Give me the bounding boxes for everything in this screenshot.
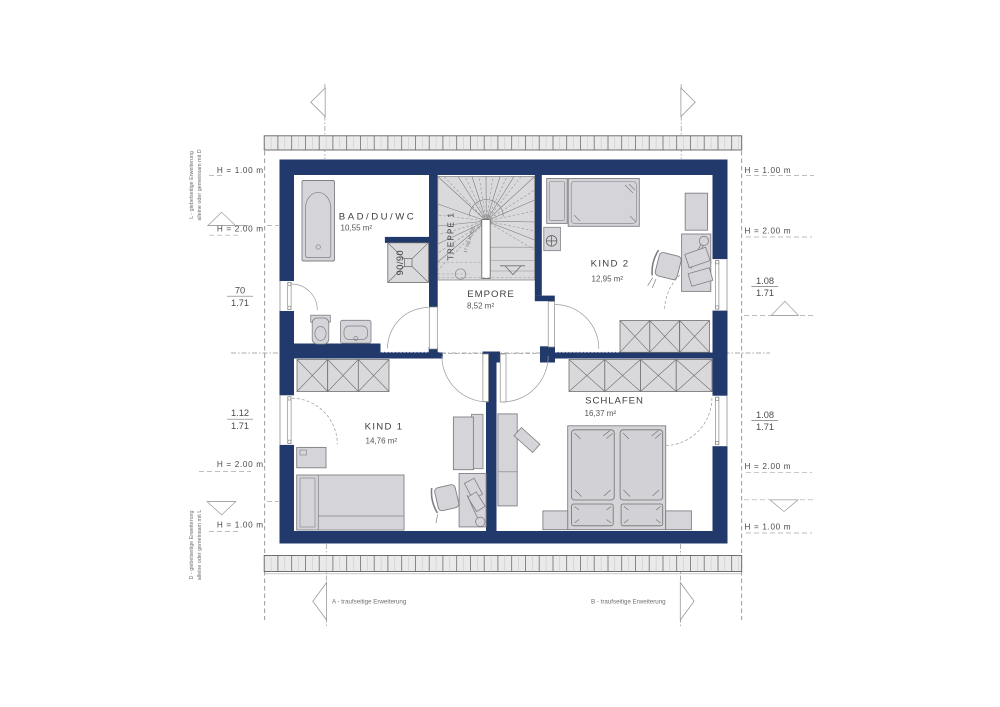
svg-text:L - giebelseitige Erweiterung: L - giebelseitige Erweiterung — [189, 151, 195, 219]
svg-text:EMPORE: EMPORE — [467, 289, 515, 300]
svg-text:TREPPE 1: TREPPE 1 — [447, 212, 456, 260]
svg-text:12,95 m²: 12,95 m² — [592, 275, 624, 284]
svg-text:alleine oder gemeinsam mit L: alleine oder gemeinsam mit L — [197, 510, 203, 580]
svg-text:1.08: 1.08 — [756, 276, 774, 286]
svg-text:KIND 1: KIND 1 — [365, 422, 404, 433]
svg-text:H = 2.00 m: H = 2.00 m — [217, 460, 264, 469]
svg-text:A - traufseitige Erweiterung: A - traufseitige Erweiterung — [332, 599, 407, 606]
svg-text:70: 70 — [235, 286, 245, 296]
svg-text:1.08: 1.08 — [756, 410, 774, 420]
svg-text:16,37 m²: 16,37 m² — [585, 409, 617, 418]
svg-text:1.71: 1.71 — [231, 421, 249, 431]
svg-text:H = 2.00 m: H = 2.00 m — [217, 224, 264, 233]
svg-text:1.71: 1.71 — [756, 288, 774, 298]
svg-text:H = 1.00 m: H = 1.00 m — [217, 166, 264, 175]
svg-text:alleine oder gemeinsam mit D: alleine oder gemeinsam mit D — [197, 149, 203, 220]
svg-text:14,76 m²: 14,76 m² — [366, 437, 398, 446]
svg-text:90/90: 90/90 — [395, 250, 405, 276]
svg-text:BAD/DU/WC: BAD/DU/WC — [339, 211, 416, 222]
svg-text:8,52 m²: 8,52 m² — [467, 302, 494, 311]
svg-text:1.71: 1.71 — [756, 422, 774, 432]
svg-text:H = 2.00 m: H = 2.00 m — [745, 226, 792, 235]
svg-text:H = 2.00 m: H = 2.00 m — [745, 462, 792, 471]
svg-text:KIND 2: KIND 2 — [591, 258, 630, 269]
svg-text:1.71: 1.71 — [231, 298, 249, 308]
svg-text:1.12: 1.12 — [231, 408, 249, 418]
svg-text:10,55 m²: 10,55 m² — [341, 224, 373, 233]
svg-text:H = 1.00 m: H = 1.00 m — [745, 522, 792, 531]
svg-text:SCHLAFEN: SCHLAFEN — [585, 396, 644, 407]
svg-text:H = 1.00 m: H = 1.00 m — [217, 521, 264, 530]
svg-text:D - giebelseitige Erweiterung: D - giebelseitige Erweiterung — [189, 511, 195, 580]
svg-text:H = 1.00 m: H = 1.00 m — [745, 166, 792, 175]
svg-text:B - traufseitige Erweiterung: B - traufseitige Erweiterung — [591, 599, 666, 606]
